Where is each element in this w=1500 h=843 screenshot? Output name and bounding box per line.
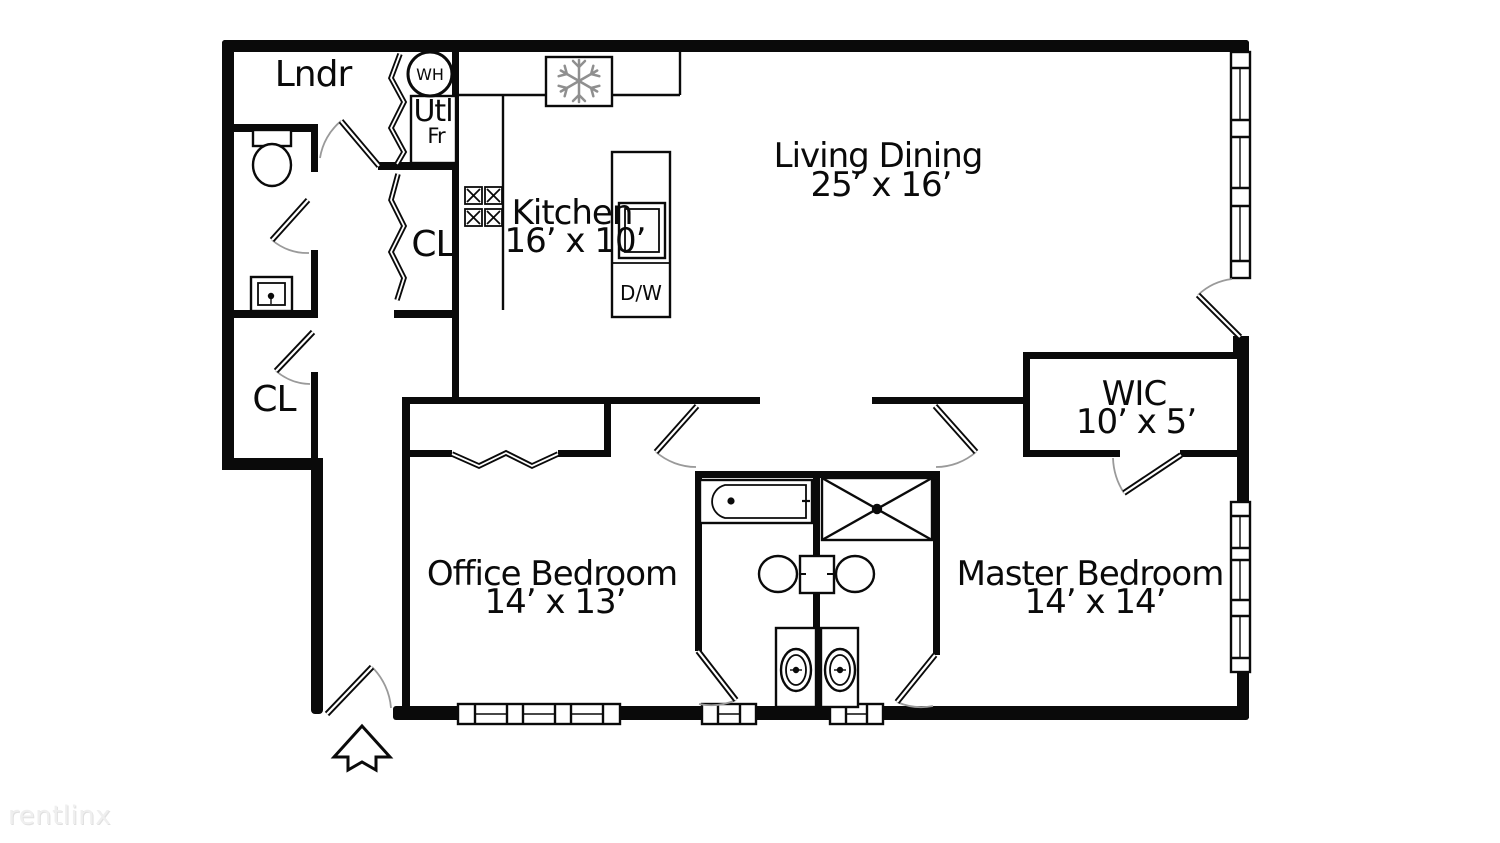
wall-office-closet-bottom-r <box>558 450 611 457</box>
entry-arrow-icon <box>334 726 390 770</box>
laundry-door-arc <box>320 121 341 158</box>
office-door-arc <box>656 452 696 467</box>
wall-powder-right-top <box>311 124 318 172</box>
rentlinx-watermark: rentlinx <box>8 801 111 831</box>
label-water-heater: WH <box>416 65 444 84</box>
label-dishwasher: D/W <box>620 281 662 305</box>
office-closet-accordion-door <box>452 453 558 466</box>
wall-wic-bottom-l <box>1023 450 1120 457</box>
wall-top <box>222 40 1249 52</box>
master-door-arc <box>936 452 976 467</box>
floor-plan: Lndr WH Utl Fr CL CL Kitchen 16’ x 10’ L… <box>0 0 1500 843</box>
wall-left-jog <box>222 458 323 470</box>
kitchen-fixtures <box>408 52 680 317</box>
window-master-right <box>1231 502 1250 672</box>
room-label-closet-upper: CL <box>411 224 455 265</box>
wall-right-lower <box>1237 670 1249 718</box>
wall-mid-left <box>402 397 760 404</box>
shower <box>822 478 932 540</box>
wall-bath-right <box>933 471 940 655</box>
wall-left-upper <box>222 40 234 470</box>
room-label-laundry: Lndr <box>275 54 353 95</box>
wall-office-closet-right <box>604 404 611 457</box>
wall-powder-right-bottom <box>311 250 318 318</box>
powder-vanity <box>251 277 292 311</box>
room-dim-living-dining: 25’ x 16’ <box>811 165 952 205</box>
room-dim-wic: 10’ x 5’ <box>1076 402 1196 442</box>
room-dim-office-bedroom: 14’ x 13’ <box>485 582 626 622</box>
label-fridge-note: Fr <box>427 124 446 148</box>
entry-door-arc <box>372 667 391 708</box>
balcony-door-jamb <box>1233 336 1249 352</box>
wic-door-arc <box>1113 458 1124 493</box>
window-hallbath-bottom <box>702 704 756 724</box>
balcony-door-arc <box>1198 279 1232 295</box>
wall-left-lower <box>311 458 323 714</box>
wall-mid-right <box>872 397 1030 404</box>
wall-kitchen-bottom <box>394 310 459 318</box>
wall-wic-left <box>1023 352 1030 457</box>
room-label-closet-lower: CL <box>252 379 296 420</box>
room-dim-master-bedroom: 14’ x 14’ <box>1025 582 1166 622</box>
wall-right-mid <box>1237 350 1249 502</box>
vanity-hallbath <box>776 628 816 707</box>
powder-door-arc <box>272 240 309 253</box>
powder-toilet <box>253 130 291 186</box>
stove-icon <box>465 187 502 226</box>
wall-office-closet-bottom-l <box>402 450 452 457</box>
wall-closet-lower-right <box>311 372 318 464</box>
room-dim-kitchen: 16’ x 10’ <box>505 221 646 261</box>
floor-plan-page: Lndr WH Utl Fr CL CL Kitchen 16’ x 10’ L… <box>0 0 1500 843</box>
bathtub <box>700 480 812 523</box>
wall-wic-bottom-r <box>1180 450 1237 457</box>
window-living-right <box>1231 52 1250 278</box>
wall-wic-top <box>1023 352 1237 359</box>
vanity-masterbath <box>821 628 858 707</box>
window-office-bottom <box>458 704 620 724</box>
back-to-back-toilets <box>759 556 874 593</box>
wall-office-left <box>402 397 410 714</box>
